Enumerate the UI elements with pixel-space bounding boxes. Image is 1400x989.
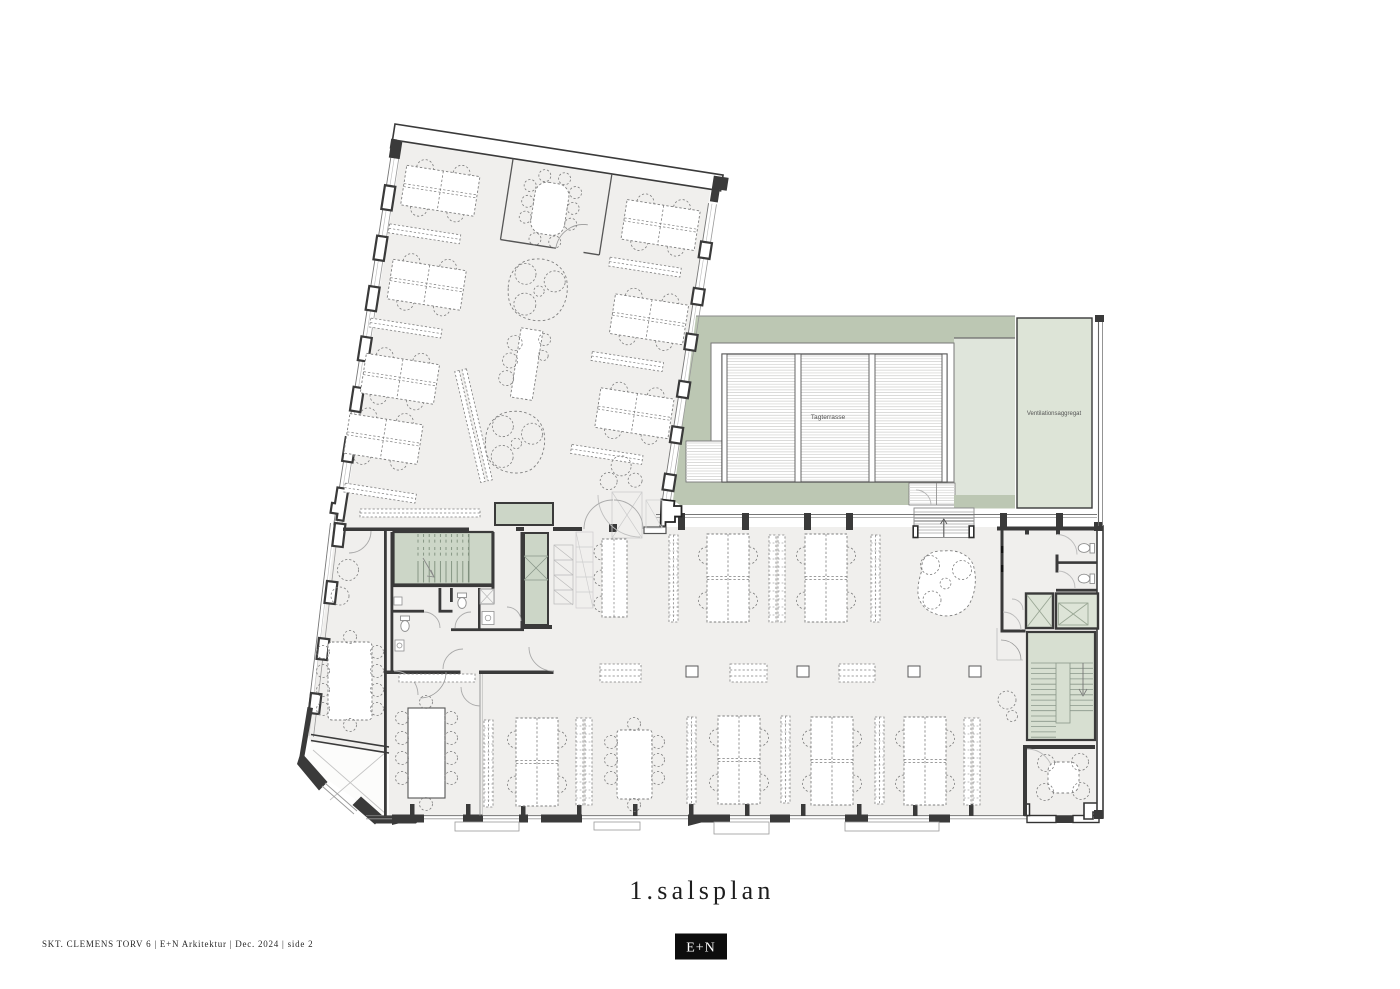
svg-text:Ventilationsaggregat: Ventilationsaggregat xyxy=(1027,411,1082,417)
svg-text:E+N: E+N xyxy=(686,941,716,956)
svg-text:1.salsplan: 1.salsplan xyxy=(629,876,774,905)
svg-text:Tagterrasse: Tagterrasse xyxy=(811,414,846,421)
svg-text:SKT. CLEMENS TORV 6 | E+N Ar: SKT. CLEMENS TORV 6 | E+N Arkitektur | D… xyxy=(42,939,313,949)
